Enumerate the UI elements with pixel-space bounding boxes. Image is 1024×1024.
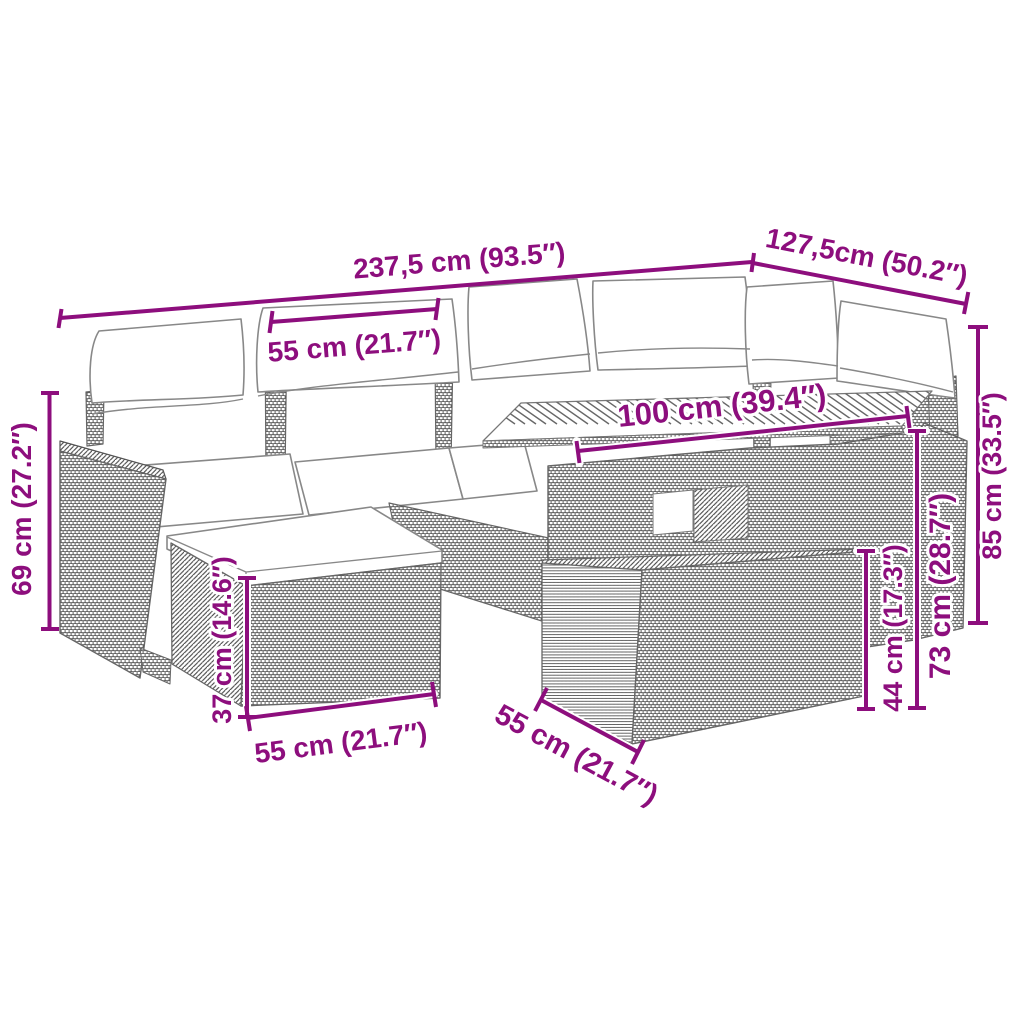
svg-text:85 cm (33.5″): 85 cm (33.5″)	[977, 392, 1007, 560]
svg-text:73 cm (28.7″): 73 cm (28.7″)	[924, 493, 957, 679]
svg-text:69 cm (27.2″): 69 cm (27.2″)	[6, 422, 37, 596]
svg-text:44 cm (17.3″): 44 cm (17.3″)	[878, 544, 908, 712]
svg-text:37 cm (14.6″): 37 cm (14.6″)	[207, 556, 237, 724]
